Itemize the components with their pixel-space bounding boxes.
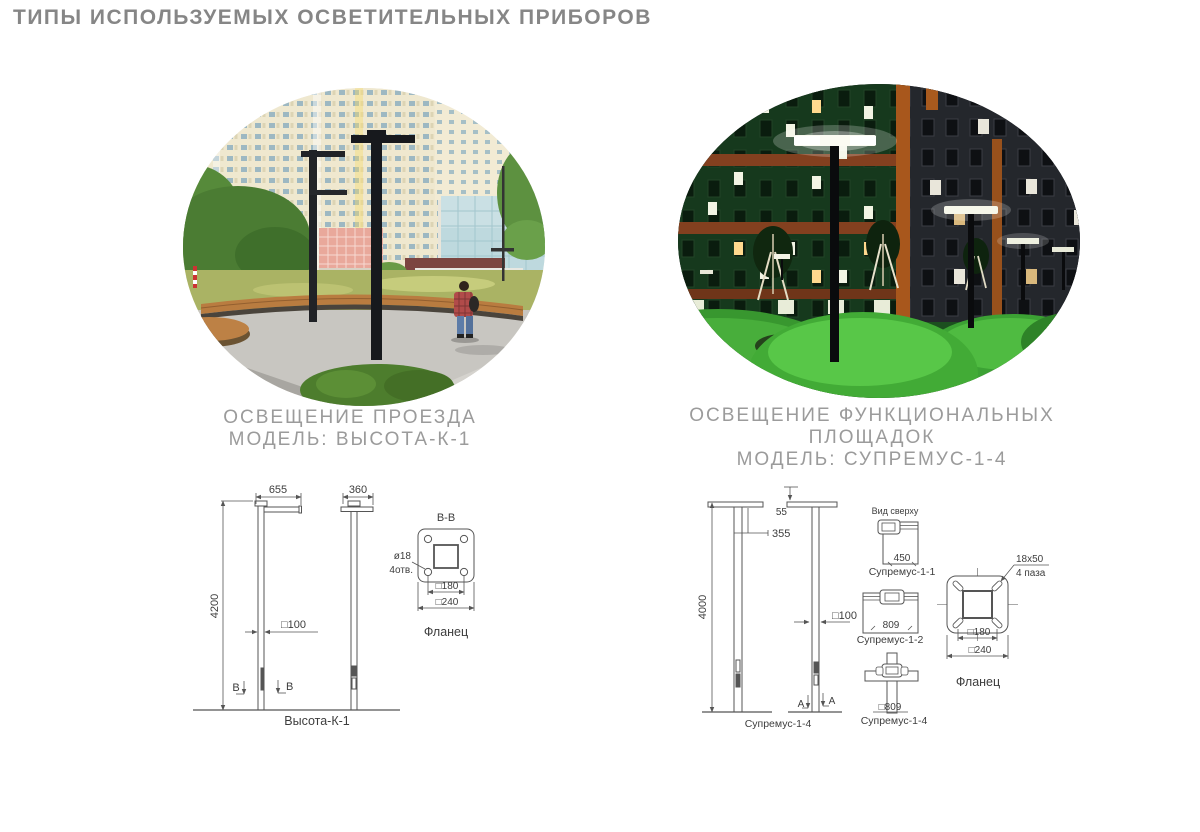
slide: ТИПЫ ИСПОЛЬЗУЕМЫХ ОСВЕТИТЕЛЬНЫХ ПРИБОРОВ [0,0,1200,832]
page-title: ТИПЫ ИСПОЛЬЗУЕМЫХ ОСВЕТИТЕЛЬНЫХ ПРИБОРОВ [13,6,652,30]
section-view-title: B-B [437,512,455,524]
dim-100-right: □100 [832,610,857,622]
dim-450: 450 [894,553,911,564]
section-mark-b-left: B [232,682,239,694]
photo-night-courtyard [678,84,1080,399]
supremus-dimension-lines [712,487,850,712]
variant-label-1-4: Супремус-1-4 [861,715,928,727]
dim-100-left: □100 [281,619,306,631]
caption-functional-areas: ОСВЕЩЕНИЕ ФУНКЦИОНАЛЬНЫХ ПЛОЩАДОК МОДЕЛЬ… [633,405,1111,471]
top-view-title: Вид сверху [872,506,919,516]
supremus-pole-side-view [787,502,842,712]
holes-note-line1: ø18 [394,551,412,562]
dim-4000: 4000 [697,595,709,619]
dim-360: 360 [349,484,367,496]
slots-note-line1: 18x50 [1016,554,1044,565]
variant-label-1-1: Супремус-1-1 [869,566,936,578]
flange-caption-right: Фланец [956,675,1000,689]
section-mark-a-right: A [829,696,836,707]
drawing-supremus: 4000 55 355 □100 A A Супремус-1-4 Вид св… [690,483,1070,743]
night-mounds [678,309,1080,399]
model-caption-vysota: Высота-К-1 [284,714,350,728]
day-road-sign [193,266,197,288]
holes-note-line2: 4отв. [389,565,413,576]
dim-655: 655 [269,484,287,496]
drawing-vysota-k1: 655 360 4200 □100 B B B-B ø18 4отв. □180… [185,478,515,743]
caption-driveway-line2: МОДЕЛЬ: ВЫСОТА-К-1 [150,429,550,451]
night-building-green [678,84,910,324]
dim-180-left: □180 [436,581,459,592]
caption-functional-line3: МОДЕЛЬ: СУПРЕМУС-1-4 [633,449,1111,471]
supremus-flange-view [937,565,1049,659]
vysota-pole-side-view [341,501,373,710]
photo-day-driveway [183,88,545,406]
caption-functional-line1: ОСВЕЩЕНИЕ ФУНКЦИОНАЛЬНЫХ [633,405,1111,427]
supremus-pole-front-view [702,502,772,712]
vysota-pole-front-view [255,501,302,710]
section-mark-b-right: B [286,681,293,693]
caption-driveway-line1: ОСВЕЩЕНИЕ ПРОЕЗДА [150,407,550,429]
dim-809: 809 [883,620,900,631]
slots-note-line2: 4 паза [1016,568,1046,579]
dim-809-square: □809 [879,702,902,713]
dim-240-left: □240 [436,597,459,608]
caption-driveway: ОСВЕЩЕНИЕ ПРОЕЗДА МОДЕЛЬ: ВЫСОТА-К-1 [150,407,550,451]
dim-240-right: □240 [969,645,992,656]
dim-4200: 4200 [209,594,221,618]
photo-night-courtyard-art [678,84,1080,399]
vysota-dimension-lines [221,493,373,710]
caption-functional-line2: ПЛОЩАДОК [633,427,1111,449]
dim-180-right: □180 [968,627,991,638]
dim-55: 55 [776,507,788,518]
pole-caption-supremus: Супремус-1-4 [745,718,812,730]
flange-caption-left: Фланец [424,625,468,639]
variant-label-1-2: Супремус-1-2 [857,634,924,646]
dim-355: 355 [772,528,790,540]
photo-day-driveway-art [183,88,545,406]
section-mark-a-left: A [798,699,805,710]
